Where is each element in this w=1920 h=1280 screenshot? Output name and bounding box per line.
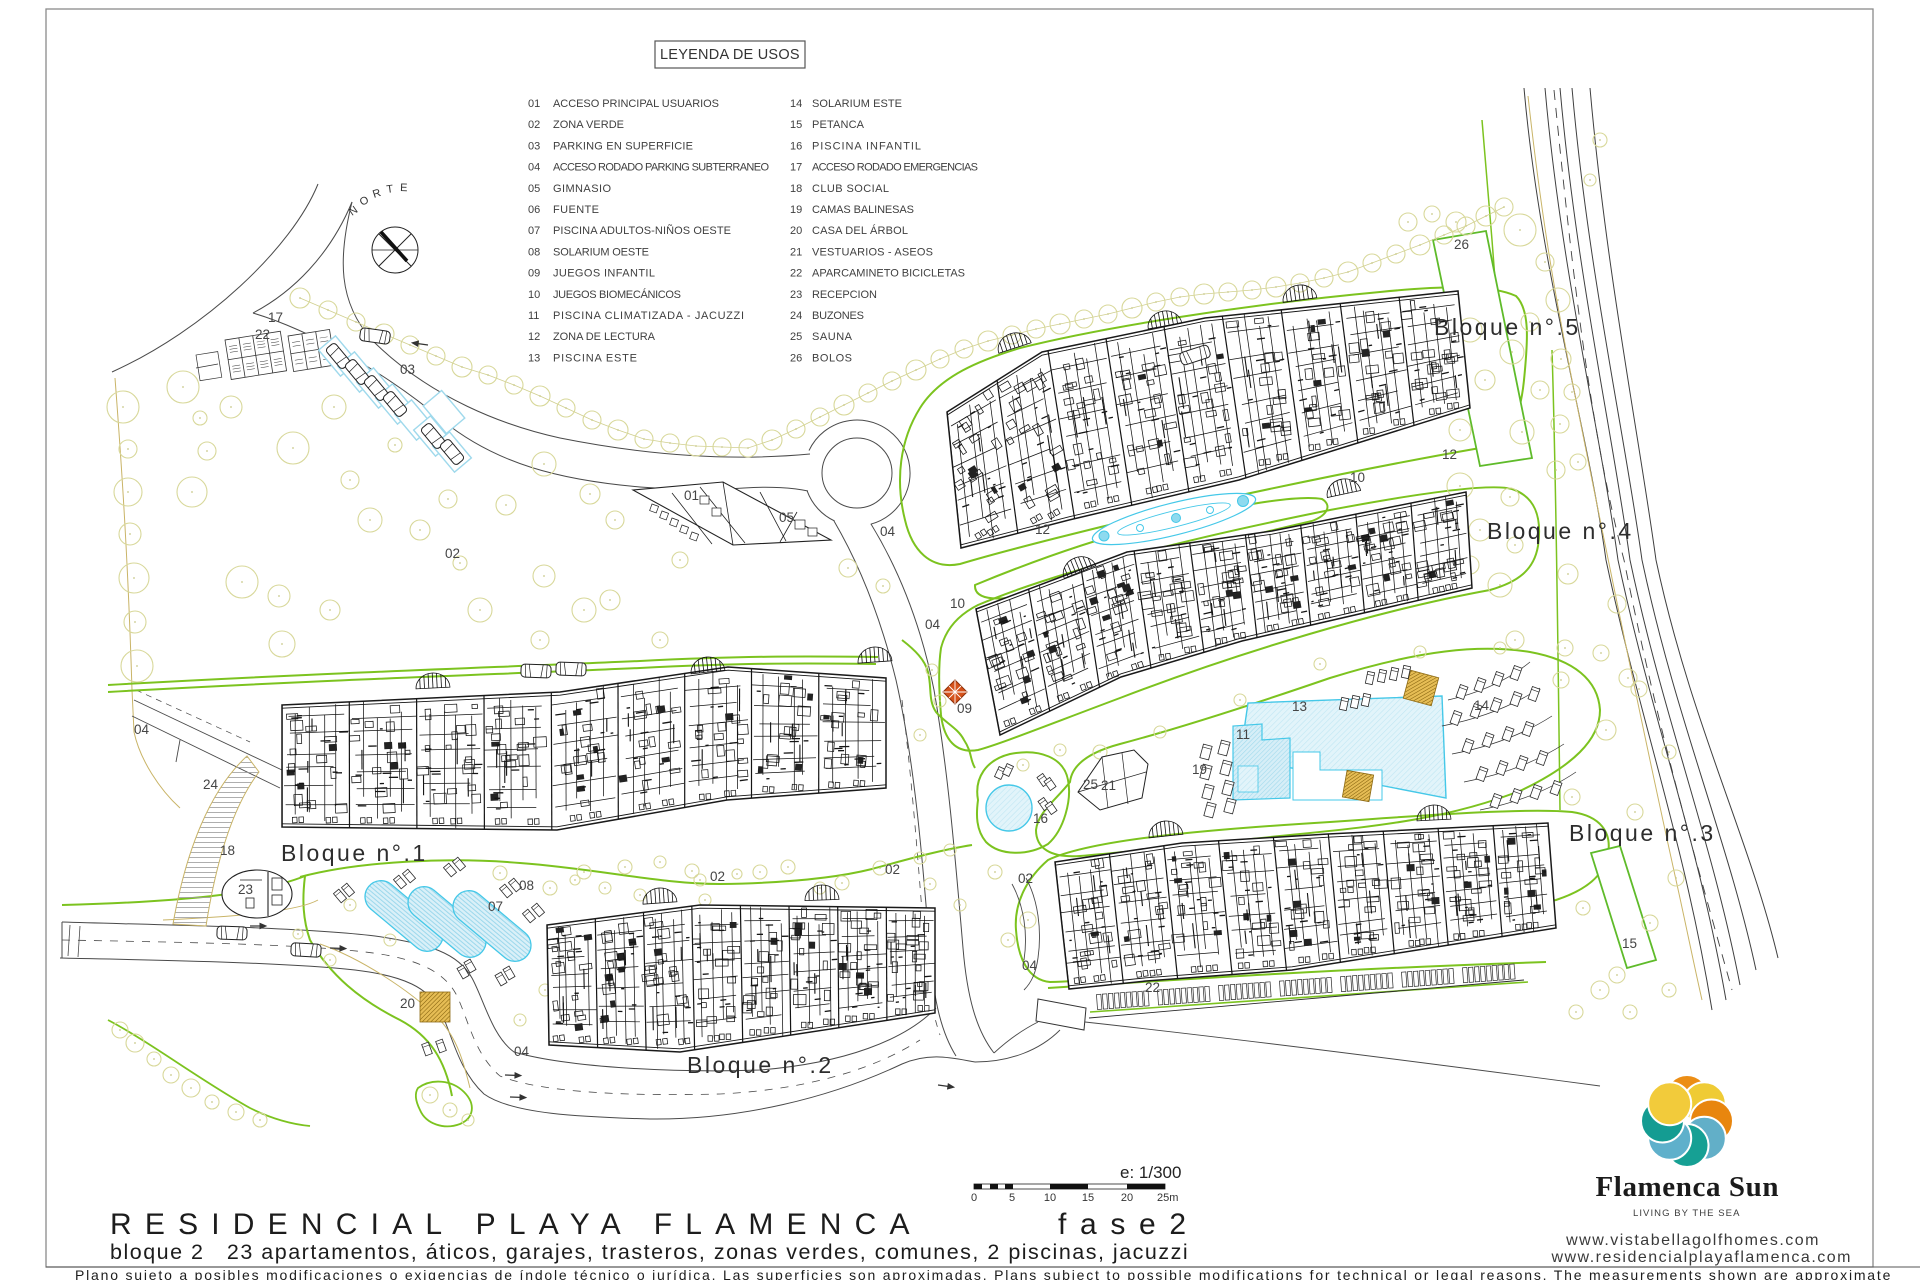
svg-text:02: 02 — [885, 862, 900, 877]
svg-text:19: 19 — [790, 204, 802, 216]
svg-text:CASA DEL ÁRBOL: CASA DEL ÁRBOL — [812, 224, 908, 237]
svg-text:06: 06 — [528, 204, 540, 216]
svg-text:5: 5 — [1009, 1192, 1015, 1204]
svg-text:21: 21 — [790, 246, 802, 258]
svg-text:SOLARIUM OESTE: SOLARIUM OESTE — [553, 246, 649, 258]
svg-text:ZONA DE LECTURA: ZONA DE LECTURA — [553, 331, 656, 343]
svg-text:01: 01 — [528, 98, 540, 110]
svg-text:SAUNA: SAUNA — [812, 331, 853, 343]
svg-text:02: 02 — [528, 119, 540, 131]
svg-text:VESTUARIOS - ASEOS: VESTUARIOS - ASEOS — [812, 246, 933, 258]
svg-text:26: 26 — [790, 352, 802, 364]
svg-text:10: 10 — [528, 289, 540, 301]
svg-text:JUEGOS INFANTIL: JUEGOS INFANTIL — [553, 268, 655, 280]
svg-text:RECEPCION: RECEPCION — [812, 289, 877, 301]
svg-text:02: 02 — [710, 869, 725, 884]
svg-text:07: 07 — [528, 225, 540, 237]
svg-text:08: 08 — [528, 246, 540, 258]
svg-text:LIVING BY THE SEA: LIVING BY THE SEA — [1633, 1208, 1741, 1219]
svg-text:0: 0 — [971, 1192, 977, 1204]
svg-text:24: 24 — [790, 310, 802, 322]
svg-text:JUEGOS BIOMECÁNICOS: JUEGOS BIOMECÁNICOS — [553, 288, 681, 301]
svg-text:ACCESO RODADO EMERGENCIAS: ACCESO RODADO EMERGENCIAS — [812, 162, 978, 174]
svg-text:04: 04 — [880, 524, 896, 539]
svg-text:ZONA VERDE: ZONA VERDE — [553, 119, 624, 131]
svg-text:12: 12 — [1442, 447, 1457, 462]
svg-text:09: 09 — [528, 268, 540, 280]
svg-text:22: 22 — [255, 327, 270, 342]
svg-text:FUENTE: FUENTE — [553, 204, 599, 216]
svg-text:12: 12 — [528, 331, 540, 343]
svg-text:05: 05 — [528, 183, 540, 195]
svg-text:12: 12 — [1035, 522, 1050, 537]
svg-text:CAMAS BALINESAS: CAMAS BALINESAS — [812, 204, 914, 216]
svg-text:Bloque n°.1: Bloque n°.1 — [281, 840, 428, 866]
svg-text:13: 13 — [528, 352, 540, 364]
svg-text:04: 04 — [528, 162, 540, 174]
svg-text:25: 25 — [1083, 777, 1098, 792]
svg-text:25: 25 — [790, 331, 802, 343]
svg-text:03: 03 — [528, 140, 540, 152]
svg-text:11: 11 — [1236, 727, 1250, 742]
svg-text:15: 15 — [790, 119, 802, 131]
svg-text:02: 02 — [1018, 871, 1033, 886]
svg-text:16: 16 — [790, 140, 802, 152]
svg-text:PISCINA ESTE: PISCINA ESTE — [553, 352, 637, 364]
svg-text:10: 10 — [1044, 1192, 1056, 1204]
svg-text:24: 24 — [203, 777, 219, 792]
svg-text:04: 04 — [925, 617, 941, 632]
svg-text:PISCINA INFANTIL: PISCINA INFANTIL — [812, 140, 921, 152]
svg-text:E: E — [400, 182, 408, 194]
svg-text:25m: 25m — [1157, 1192, 1178, 1204]
svg-text:26: 26 — [1454, 237, 1469, 252]
svg-text:15: 15 — [1082, 1192, 1094, 1204]
svg-text:fase2: fase2 — [1058, 1208, 1198, 1241]
svg-text:15: 15 — [1622, 936, 1637, 951]
svg-text:04: 04 — [134, 722, 150, 737]
svg-text:Bloque n°.3: Bloque n°.3 — [1569, 820, 1716, 846]
svg-text:PARKING EN SUPERFICIE: PARKING EN SUPERFICIE — [553, 140, 693, 152]
svg-text:22: 22 — [1145, 980, 1160, 995]
svg-text:RESIDENCIAL PLAYA FLAMENCA: RESIDENCIAL PLAYA FLAMENCA — [110, 1208, 922, 1241]
svg-text:17: 17 — [790, 162, 802, 174]
svg-text:ACCESO RODADO PARKING SUBTERRA: ACCESO RODADO PARKING SUBTERRANEO — [553, 162, 769, 174]
svg-text:Flamenca Sun: Flamenca Sun — [1596, 1171, 1779, 1203]
svg-text:SOLARIUM ESTE: SOLARIUM ESTE — [812, 98, 902, 110]
svg-text:Bloque n°.5: Bloque n°.5 — [1434, 314, 1581, 340]
svg-text:LEYENDA DE USOS: LEYENDA DE USOS — [660, 47, 800, 63]
svg-text:01: 01 — [684, 488, 699, 503]
svg-text:20: 20 — [1121, 1192, 1133, 1204]
svg-text:19: 19 — [1192, 762, 1207, 777]
svg-text:16: 16 — [1033, 811, 1048, 826]
svg-text:18: 18 — [790, 183, 802, 195]
svg-text:05: 05 — [779, 510, 794, 525]
svg-text:GIMNASIO: GIMNASIO — [553, 183, 611, 195]
svg-text:10: 10 — [1350, 470, 1365, 485]
svg-text:20: 20 — [400, 996, 415, 1011]
svg-text:BOLOS: BOLOS — [812, 352, 852, 364]
svg-text:bloque 2 23 apartamentos, át: bloque 2 23 apartamentos, áticos, garaje… — [110, 1240, 1189, 1264]
svg-text:PISCINA ADULTOS-NIÑOS OESTE: PISCINA ADULTOS-NIÑOS OESTE — [553, 224, 731, 237]
svg-text:23: 23 — [238, 882, 253, 897]
svg-text:BUZONES: BUZONES — [812, 310, 864, 322]
svg-text:04: 04 — [514, 1044, 530, 1059]
svg-text:e: 1/300: e: 1/300 — [1120, 1163, 1181, 1182]
svg-text:www.residencialplayaflamenca.c: www.residencialplayaflamenca.com — [1550, 1249, 1852, 1266]
svg-text:03: 03 — [400, 362, 415, 377]
svg-text:09: 09 — [957, 701, 972, 716]
svg-text:www.vistabellagolfhomes.com: www.vistabellagolfhomes.com — [1565, 1232, 1820, 1249]
svg-text:20: 20 — [790, 225, 802, 237]
svg-text:10: 10 — [950, 596, 965, 611]
svg-text:APARCAMINETO BICICLETAS: APARCAMINETO BICICLETAS — [812, 268, 965, 280]
svg-text:Bloque n°.4: Bloque n°.4 — [1487, 518, 1634, 544]
svg-text:13: 13 — [1292, 699, 1307, 714]
svg-text:ACCESO PRINCIPAL USUARIOS: ACCESO PRINCIPAL USUARIOS — [553, 98, 719, 110]
svg-text:02: 02 — [445, 546, 460, 561]
svg-text:PISCINA CLIMATIZADA - JACUZZI: PISCINA CLIMATIZADA - JACUZZI — [553, 310, 744, 322]
svg-text:08: 08 — [519, 878, 534, 893]
svg-text:18: 18 — [220, 843, 235, 858]
svg-text:21: 21 — [1101, 778, 1116, 793]
svg-text:11: 11 — [528, 310, 539, 322]
svg-text:Plano sujeto a posibles modifi: Plano sujeto a posibles modificaciones o… — [75, 1267, 1892, 1280]
svg-text:Bloque n°.2: Bloque n°.2 — [687, 1052, 834, 1078]
svg-text:07: 07 — [488, 899, 503, 914]
svg-text:CLUB SOCIAL: CLUB SOCIAL — [812, 183, 889, 195]
svg-text:22: 22 — [790, 268, 802, 280]
svg-text:14: 14 — [790, 98, 802, 110]
svg-text:14: 14 — [1474, 698, 1490, 713]
svg-text:17: 17 — [268, 310, 283, 325]
svg-text:PETANCA: PETANCA — [812, 119, 865, 131]
svg-text:23: 23 — [790, 289, 802, 301]
svg-text:04: 04 — [1022, 958, 1038, 973]
